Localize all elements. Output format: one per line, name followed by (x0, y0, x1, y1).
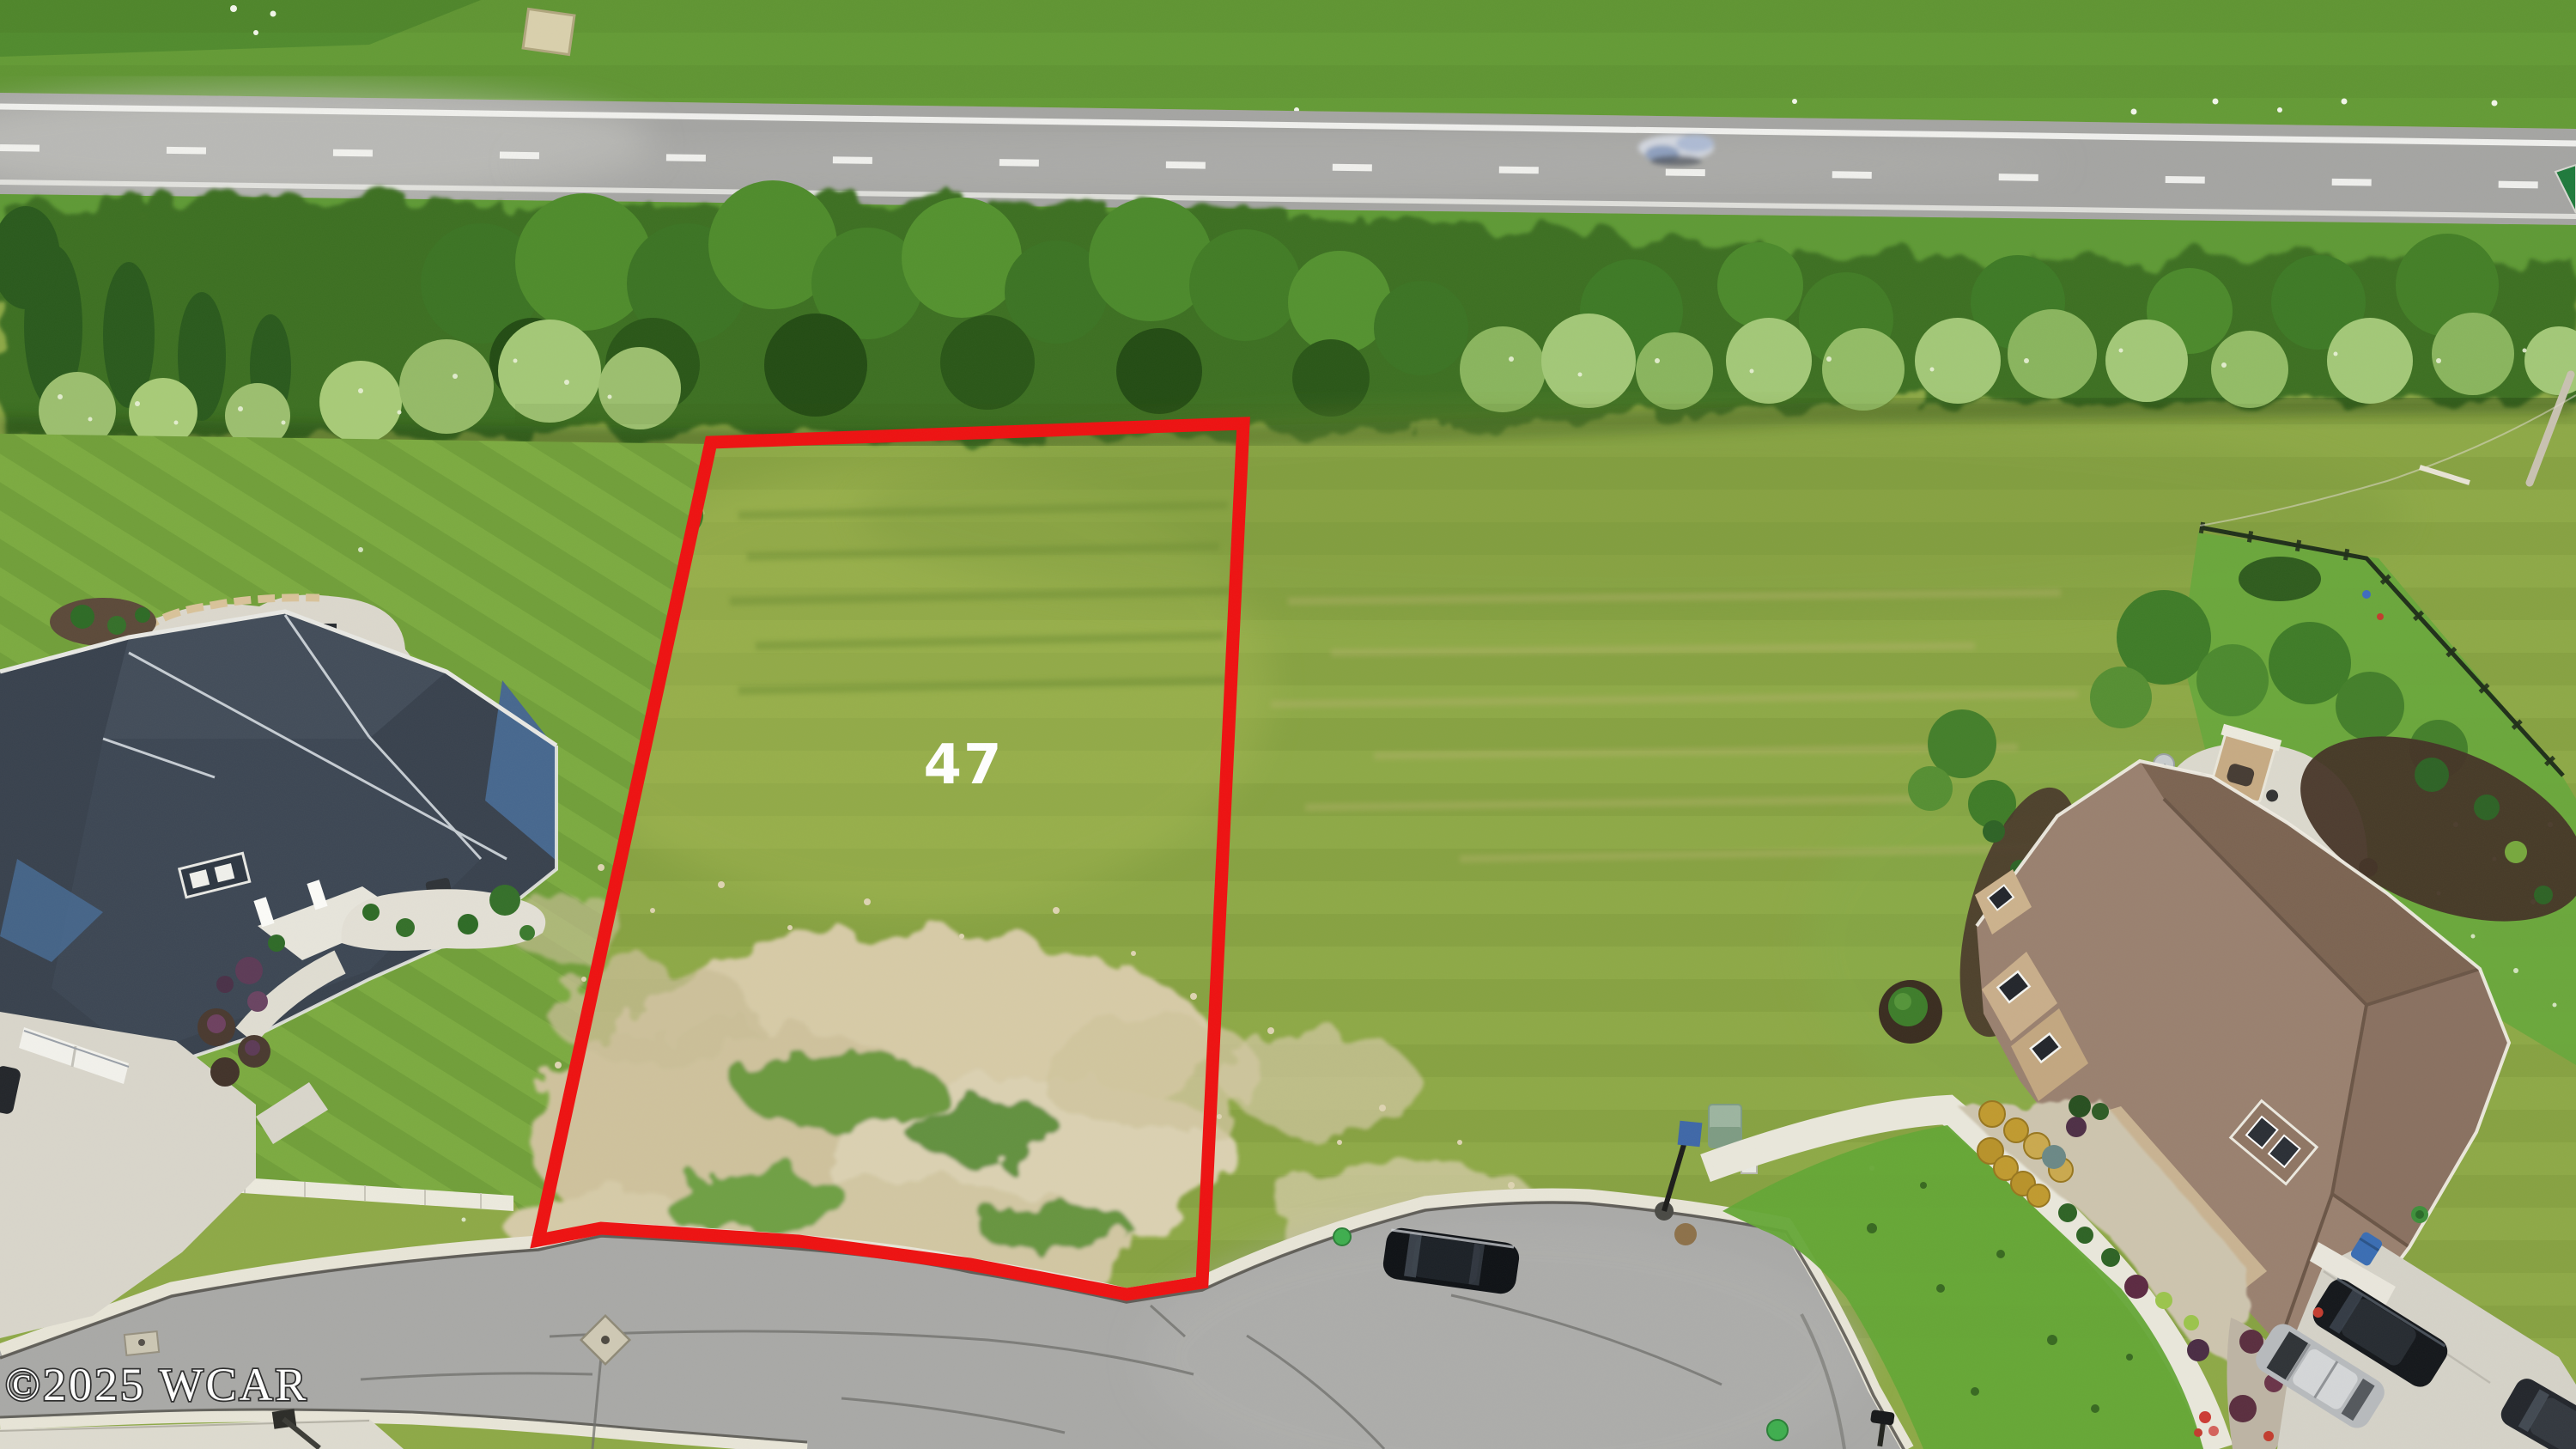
photo-grain-overlay (0, 0, 2576, 1449)
aerial-photo: 47 ©2025 WCAR (0, 0, 2576, 1449)
aerial-photo-canvas: 47 ©2025 WCAR (0, 0, 2576, 1449)
